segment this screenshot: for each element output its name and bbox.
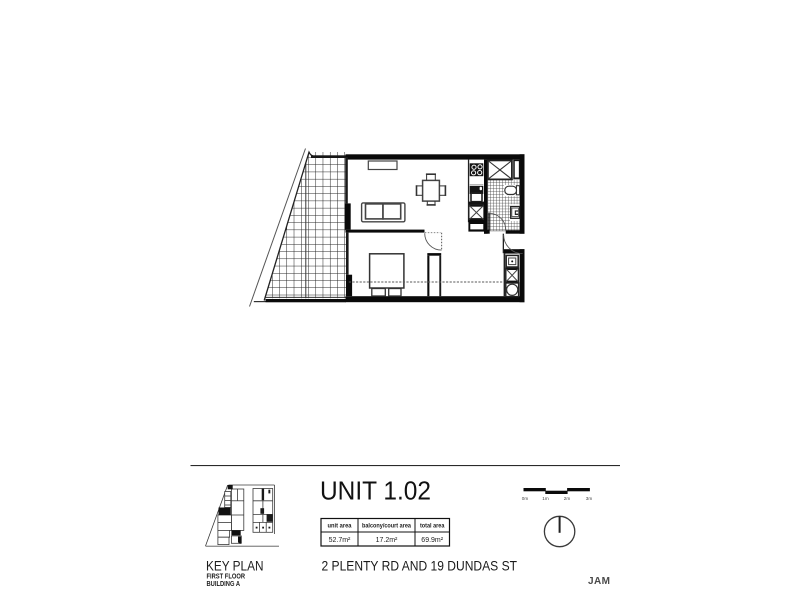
svg-text:52.7m²: 52.7m² [329,537,351,544]
svg-text:BUILDING A: BUILDING A [207,581,241,588]
svg-text:JAM: JAM [588,576,610,587]
svg-text:3m: 3m [586,496,593,501]
svg-text:FIRST FLOOR: FIRST FLOOR [207,574,246,581]
svg-text:UNIT 1.02: UNIT 1.02 [320,478,431,506]
svg-text:17.2m²: 17.2m² [376,537,398,544]
svg-text:KEY PLAN: KEY PLAN [206,559,264,574]
svg-text:unit area: unit area [328,523,352,530]
svg-text:69.9m²: 69.9m² [421,537,443,544]
svg-text:2 PLENTY RD AND 19 DUNDAS ST: 2 PLENTY RD AND 19 DUNDAS ST [322,559,518,575]
svg-text:balcony/court area: balcony/court area [362,523,411,530]
svg-text:0m: 0m [522,496,529,501]
svg-text:total area: total area [420,523,445,530]
svg-text:1m: 1m [542,496,549,501]
svg-text:2m: 2m [564,496,571,501]
